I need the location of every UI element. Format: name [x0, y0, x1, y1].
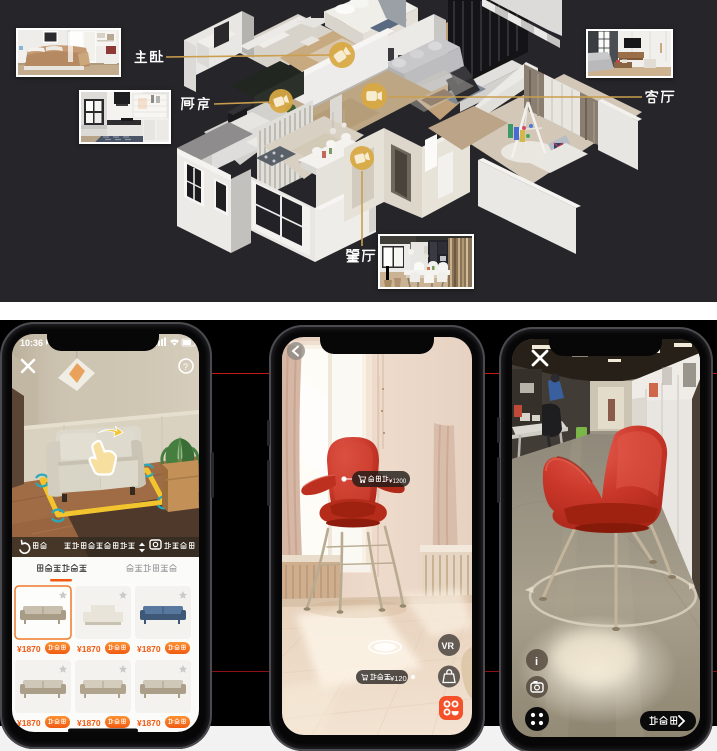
svg-text:10:36: 10:36 [20, 338, 43, 348]
svg-text:¥1870: ¥1870 [17, 644, 41, 654]
svg-text:¥1870: ¥1870 [77, 644, 101, 654]
svg-text:¥1200: ¥1200 [389, 478, 407, 485]
svg-text:i: i [535, 656, 538, 668]
svg-text:¥1870: ¥1870 [77, 718, 101, 728]
svg-text:¥120: ¥120 [390, 674, 407, 683]
svg-text:¥1870: ¥1870 [17, 718, 41, 728]
svg-text:¥1870: ¥1870 [137, 644, 161, 654]
svg-text:¥1870: ¥1870 [137, 718, 161, 728]
svg-text:VR: VR [442, 641, 455, 651]
svg-text:?: ? [183, 362, 188, 372]
